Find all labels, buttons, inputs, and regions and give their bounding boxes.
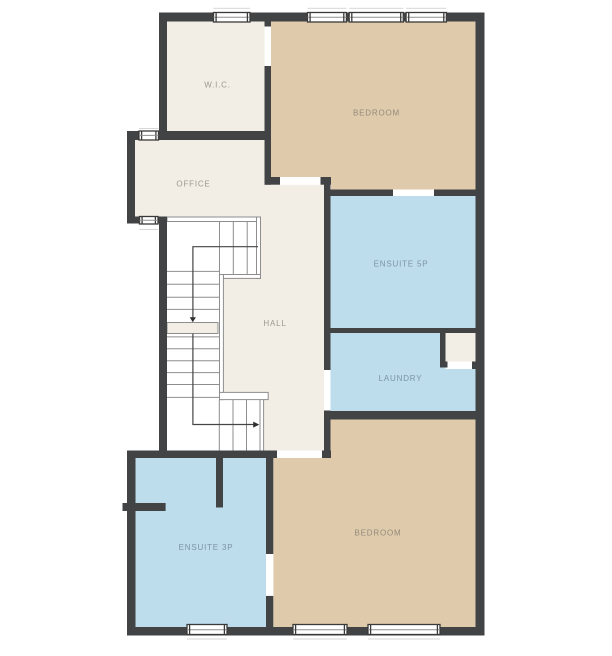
svg-text:ENSUITE 5P: ENSUITE 5P [374,260,429,269]
svg-text:OFFICE: OFFICE [176,180,210,189]
svg-text:BEDROOM: BEDROOM [353,109,400,118]
svg-text:LAUNDRY: LAUNDRY [379,374,423,383]
svg-text:HALL: HALL [263,319,286,328]
svg-text:BEDROOM: BEDROOM [355,529,402,538]
svg-text:W.I.C.: W.I.C. [204,81,231,90]
svg-text:ENSUITE 3P: ENSUITE 3P [179,543,234,552]
